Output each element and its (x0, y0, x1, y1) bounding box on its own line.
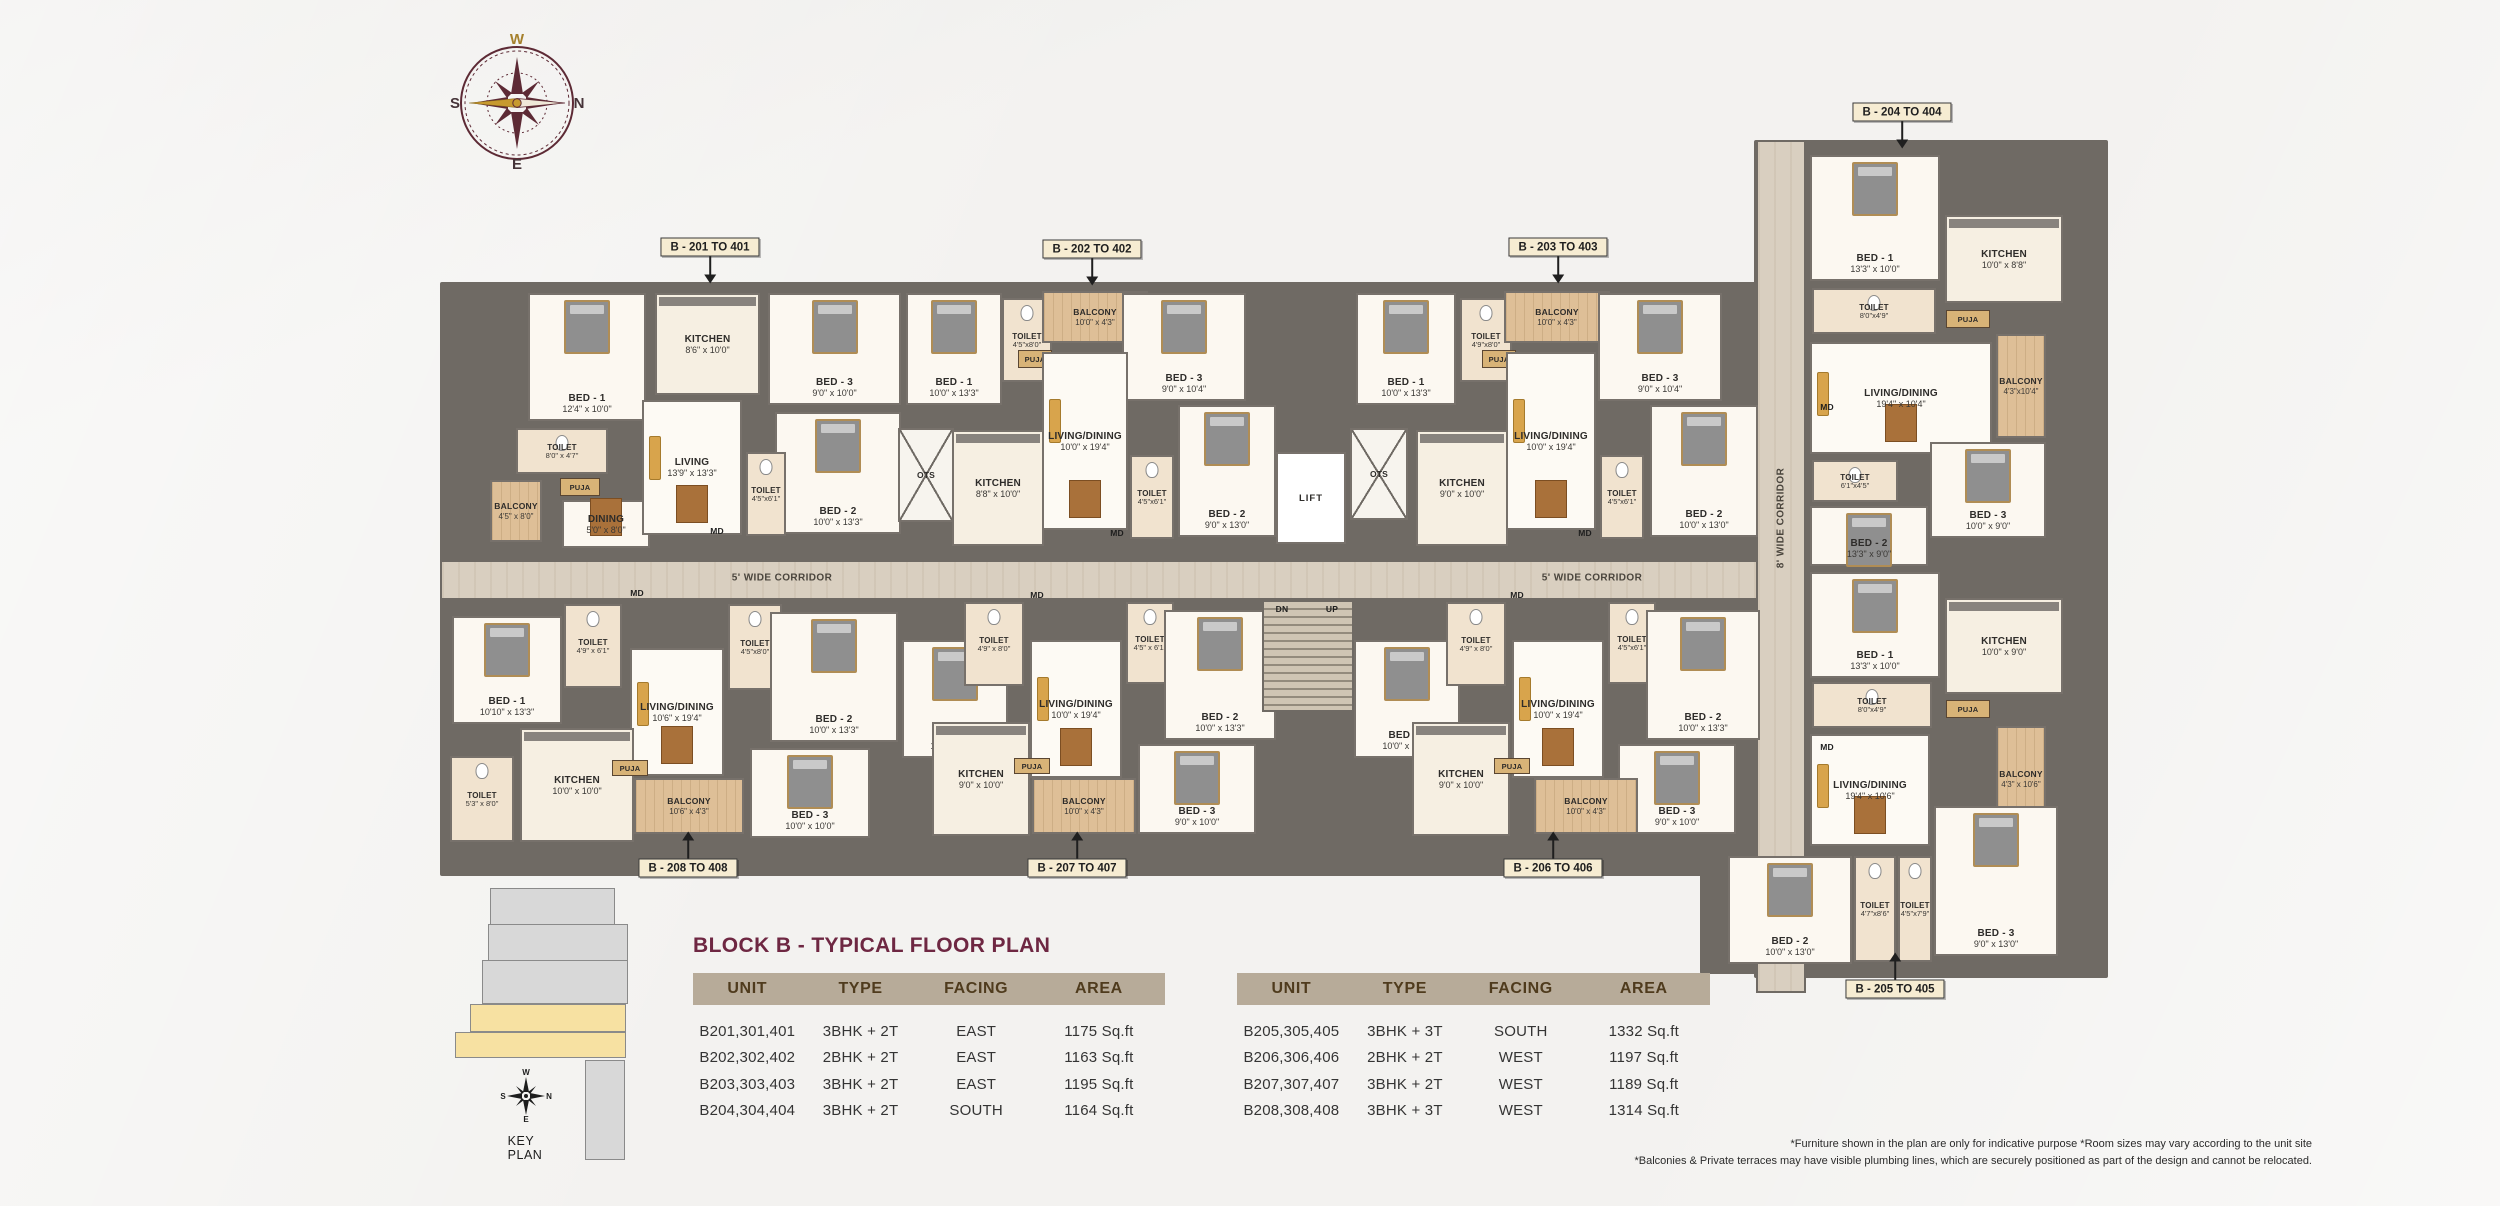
bed-icon (1654, 751, 1700, 805)
room-b-207-bed-2: BED - 210'0" x 13'3" (1164, 610, 1276, 740)
room-name: BED - 2 (1851, 538, 1888, 549)
bed-icon (787, 755, 833, 809)
room-b-202-kitchen: KITCHEN8'8" x 10'0" (952, 430, 1044, 546)
dining-table-icon (1885, 404, 1917, 442)
room-name: BED - 3 (792, 810, 829, 821)
room-dimensions: 10'0" x 9'0" (1982, 647, 2026, 657)
room-b-203-kitchen: KITCHEN9'0" x 10'0" (1416, 430, 1508, 546)
room-b-201-toilet: TOILET4'5"x6'1" (746, 452, 786, 536)
room-name: MD (1110, 528, 1124, 539)
table-cell-type: 3BHK + 3T (1346, 1023, 1464, 1040)
room-name: BED - 1 (936, 377, 973, 388)
room-name: KITCHEN (685, 334, 731, 345)
room-dimensions: 10'0" x 19'4" (1051, 710, 1100, 720)
table-cell-unit: B201,301,401 (693, 1023, 802, 1040)
room-name: BED - 1 (489, 696, 526, 707)
kitchen-counter-icon (1416, 726, 1506, 735)
room-name: KITCHEN (1438, 769, 1484, 780)
table-body: B201,301,4013BHK + 2TEAST1175 Sq.ftB202,… (693, 1018, 1165, 1124)
keyplan-compass-e: E (523, 1115, 529, 1124)
floor-plan-page: W N E S 5' WIDE CORRIDOR5' WIDE CORRIDOR… (0, 0, 2500, 1206)
room-name: KITCHEN (554, 775, 600, 786)
bed-icon (1965, 449, 2011, 503)
room-dimensions: 8'6" x 10'0" (685, 345, 729, 355)
toilet-wc-icon (1626, 609, 1639, 625)
table-cell-unit: B203,303,403 (693, 1076, 802, 1093)
unit-callout-label: B - 206 TO 406 (1503, 859, 1602, 878)
table-body: B205,305,4053BHK + 3TSOUTH1332 Sq.ftB206… (1237, 1018, 1710, 1124)
table-cell-area: 1197 Sq.ft (1578, 1049, 1710, 1066)
room-b-208-toilet: TOILET5'3" x 8'0" (450, 756, 514, 842)
room-dimensions: 4'9" x 6'1" (577, 647, 610, 655)
room-name: BALCONY (1999, 376, 2042, 387)
room-dimensions: 4'5"x6'1" (1618, 644, 1647, 652)
dining-table-icon (1069, 480, 1101, 518)
corridor-label-1: 5' WIDE CORRIDOR (732, 573, 832, 584)
kitchen-counter-icon (1949, 219, 2059, 228)
table-cell-type: 2BHK + 2T (802, 1049, 920, 1066)
kitchen-counter-icon (936, 726, 1026, 735)
corridor-label-2: 5' WIDE CORRIDOR (1542, 573, 1642, 584)
sofa-icon (1817, 764, 1829, 808)
room-b-208-bed-1: BED - 110'10" x 13'3" (452, 616, 562, 724)
room-b-203-md: MD (1568, 526, 1602, 540)
unit-table-left: UNITTYPEFACINGAREAB201,301,4013BHK + 2TE… (693, 973, 1165, 1124)
unit-callout-label: B - 202 TO 402 (1042, 240, 1141, 259)
room-dimensions: 13'3" x 10'0" (1850, 661, 1899, 671)
room-dimensions: 9'0" x 10'4" (1638, 384, 1682, 394)
room-b-201-toilet: TOILET8'0" x 4'7" (516, 428, 608, 474)
core-ots-3: OTS (1350, 428, 1408, 520)
toilet-wc-icon (1470, 609, 1483, 625)
unit-callout-label: B - 204 TO 404 (1852, 103, 1951, 122)
bed-icon (812, 300, 858, 354)
room-name: KITCHEN (958, 769, 1004, 780)
room-name: MD (1510, 590, 1524, 601)
room-dimensions: 4'5"x6'1" (752, 495, 781, 503)
room-dimensions: 8'0"x4'9" (1858, 706, 1887, 714)
room-name: MD (1578, 528, 1592, 539)
room-b-204-toilet: TOILET8'0"x4'9" (1812, 288, 1936, 334)
room-name: BALCONY (1062, 796, 1105, 807)
table-row: B205,305,4053BHK + 3TSOUTH1332 Sq.ft (1237, 1018, 1710, 1045)
room-b-201-bed-1: BED - 112'4" x 10'0" (528, 293, 646, 421)
room-name: PUJA (570, 482, 591, 493)
keyplan-label: KEY PLAN (508, 1134, 543, 1162)
room-b-207-kitchen: KITCHEN9'0" x 10'0" (932, 722, 1030, 836)
table-cell-unit: B206,306,406 (1237, 1049, 1346, 1066)
table-row: B204,304,4043BHK + 2TSOUTH1164 Sq.ft (693, 1098, 1165, 1125)
room-name: LIVING/DINING (1039, 699, 1113, 710)
room-b-204-md: MD (1812, 400, 1842, 414)
unit-callout-b-203: B - 203 TO 403 (1508, 238, 1607, 257)
room-dimensions: 9'0" x 10'4" (1162, 384, 1206, 394)
room-dimensions: 4'9"x8'0" (1472, 341, 1501, 349)
room-name: BED - 1 (1388, 377, 1425, 388)
bed-icon (1174, 751, 1220, 805)
unit-callout-arrow-icon (1894, 962, 1897, 980)
room-dimensions: 4'9" x 8'0" (1460, 645, 1493, 653)
toilet-wc-icon (988, 609, 1001, 625)
room-b-205-kitchen: KITCHEN10'0" x 9'0" (1945, 598, 2063, 694)
table-cell-facing: EAST (920, 1049, 1033, 1066)
room-b-204-balcony: BALCONY4'3"x10'4" (1996, 334, 2046, 438)
core-label: LIFT (1299, 493, 1323, 504)
room-name: LIVING/DINING (640, 702, 714, 713)
room-name: PUJA (1022, 761, 1043, 772)
unit-callout-arrow-icon (1552, 841, 1555, 859)
room-name: BALCONY (1535, 307, 1578, 318)
dining-table-icon (1542, 728, 1574, 766)
room-b-208-bed-3: BED - 310'0" x 10'0" (750, 748, 870, 838)
toilet-wc-icon (1909, 863, 1922, 879)
room-dimensions: 9'0" x 10'0" (1175, 817, 1219, 827)
room-name: BED - 1 (569, 393, 606, 404)
room-b-207-balcony: BALCONY10'0" x 4'3" (1032, 778, 1136, 834)
room-b-205-toilet: TOILET4'5"x7'9" (1898, 856, 1932, 962)
table-cell-facing: EAST (920, 1076, 1033, 1093)
bed-icon (1197, 617, 1243, 671)
room-dimensions: 4'5" x 6'1" (1134, 644, 1167, 652)
room-name: PUJA (1502, 761, 1523, 772)
room-dimensions: 4'5"x7'9" (1901, 910, 1930, 918)
room-b-208-bed-2: BED - 210'0" x 13'3" (770, 612, 898, 742)
room-b-205-md: MD (1812, 740, 1842, 754)
keyplan-compass-w: W (522, 1068, 530, 1077)
room-b-208-living-dining: LIVING/DINING10'6" x 19'4" (630, 648, 724, 776)
room-b-205-bed-1: BED - 113'3" x 10'0" (1810, 572, 1940, 678)
keyplan-compass-s: S (500, 1092, 506, 1101)
unit-callout-arrow-icon (687, 841, 690, 859)
room-name: BALCONY (494, 501, 537, 512)
bed-icon (484, 623, 530, 677)
keyplan-block-gray-4 (585, 1060, 625, 1160)
unit-callout-label: B - 205 TO 405 (1845, 980, 1944, 999)
dining-table-icon (1854, 796, 1886, 834)
room-dimensions: 10'0" x 13'3" (1381, 388, 1430, 398)
room-name: DINING (588, 514, 624, 525)
bed-icon (811, 619, 857, 673)
room-name: BED - 3 (1166, 373, 1203, 384)
toilet-wc-icon (1021, 305, 1034, 321)
room-name: MD (1820, 402, 1834, 413)
room-dimensions: 13'3" x 9'0" (1847, 549, 1891, 559)
room-dimensions: 8'0" x 4'7" (546, 452, 579, 460)
toilet-wc-icon (476, 763, 489, 779)
toilet-wc-icon (1869, 863, 1882, 879)
room-name: BED - 3 (1642, 373, 1679, 384)
bed-icon (1767, 863, 1813, 917)
room-dimensions: 10'0" x 8'8" (1982, 260, 2026, 270)
room-dimensions: 9'0" x 13'0" (1205, 520, 1249, 530)
table-cell-unit: B202,302,402 (693, 1049, 802, 1066)
table-cell-facing: WEST (1464, 1049, 1578, 1066)
unit-callout-label: B - 207 TO 407 (1027, 859, 1126, 878)
room-dimensions: 10'0" x 13'3" (1195, 723, 1244, 733)
toilet-wc-icon (749, 611, 762, 627)
room-b-201-kitchen: KITCHEN8'6" x 10'0" (655, 293, 760, 395)
dining-table-icon (676, 485, 708, 523)
room-name: BED - 2 (1202, 712, 1239, 723)
room-name: PUJA (1958, 704, 1979, 715)
bed-icon (1852, 162, 1898, 216)
table-cell-unit: B207,307,407 (1237, 1076, 1346, 1093)
table-cell-type: 3BHK + 2T (802, 1102, 920, 1119)
room-b-207-md: MD (1020, 588, 1054, 602)
room-dimensions: 13'3" x 10'0" (1850, 264, 1899, 274)
room-dimensions: 9'0" x 10'0" (959, 780, 1003, 790)
table-row: B206,306,4062BHK + 2TWEST1197 Sq.ft (1237, 1045, 1710, 1072)
room-name: BED - 3 (1970, 510, 2007, 521)
unit-callout-arrow-icon (1091, 259, 1094, 277)
room-b-201-puja: PUJA (560, 478, 600, 496)
room-dimensions: 9'0" x 10'0" (1655, 817, 1699, 827)
room-dimensions: 4'5"x6'1" (1138, 498, 1167, 506)
table-cell-area: 1189 Sq.ft (1578, 1076, 1710, 1093)
kitchen-counter-icon (956, 434, 1040, 443)
room-name: MD (710, 526, 724, 537)
room-dimensions: 10'0" x 4'3" (1075, 318, 1114, 328)
room-dimensions: 12'4" x 10'0" (562, 404, 611, 414)
table-cell-area: 1163 Sq.ft (1033, 1049, 1165, 1066)
room-b-206-md: MD (1500, 588, 1534, 602)
toilet-wc-icon (1146, 462, 1159, 478)
unit-callout-label: B - 208 TO 408 (638, 859, 737, 878)
room-b-201-bed-3: BED - 39'0" x 10'0" (768, 293, 901, 405)
room-name: LIVING/DINING (1833, 780, 1907, 791)
room-b-201-dining: DINING5'0" x 8'0" (562, 500, 650, 548)
room-name: BED - 3 (1659, 806, 1696, 817)
room-name: BED - 2 (816, 714, 853, 725)
room-dimensions: 5'3" x 8'0" (466, 800, 499, 808)
kitchen-counter-icon (1949, 602, 2059, 611)
room-name: BED - 3 (1179, 806, 1216, 817)
room-b-205-toilet: TOILET8'0"x4'9" (1812, 682, 1932, 728)
table-header-row: UNITTYPEFACINGAREA (693, 973, 1165, 1005)
corridor-label-3: 8' WIDE CORRIDOR (1776, 468, 1787, 568)
room-name: LIVING/DINING (1864, 388, 1938, 399)
room-b-202-bed-1: BED - 110'0" x 13'3" (906, 293, 1002, 405)
room-name: LIVING (675, 457, 710, 468)
page-title: BLOCK B - TYPICAL FLOOR PLAN (693, 934, 1050, 958)
footnote-line-1: *Furniture shown in the plan are only fo… (1635, 1136, 2313, 1153)
room-b-203-living-dining: LIVING/DINING10'0" x 19'4" (1506, 352, 1596, 530)
toilet-wc-icon (760, 459, 773, 475)
table-cell-area: 1175 Sq.ft (1033, 1023, 1165, 1040)
bed-icon (1680, 617, 1726, 671)
unit-callout-arrow-icon (1076, 841, 1079, 859)
room-name: PUJA (620, 763, 641, 774)
bed-icon (931, 300, 977, 354)
room-dimensions: 10'0" x 19'4" (1526, 442, 1575, 452)
core-label: UP (1326, 604, 1338, 615)
unit-callout-b-201: B - 201 TO 401 (660, 238, 759, 257)
room-dimensions: 10'0" x 10'0" (552, 786, 601, 796)
keyplan-block-highlight-2 (455, 1032, 626, 1058)
unit-callout-b-204: B - 204 TO 404 (1852, 103, 1951, 122)
room-name: BED - 2 (1772, 936, 1809, 947)
room-dimensions: 10'0" x 4'3" (1537, 318, 1576, 328)
unit-callout-arrow-icon (1901, 122, 1904, 140)
room-b-201-bed-2: BED - 210'0" x 13'3" (775, 412, 901, 534)
room-dimensions: 4'5"x8'0" (1013, 341, 1042, 349)
core-label: OTS (917, 470, 935, 481)
bed-icon (1852, 579, 1898, 633)
room-name: BALCONY (1564, 796, 1607, 807)
room-name: LIVING/DINING (1521, 699, 1595, 710)
room-b-204-toilet: TOILET6'1"x4'5" (1812, 460, 1898, 502)
room-name: BALCONY (667, 796, 710, 807)
room-dimensions: 10'0" x 13'3" (813, 517, 862, 527)
unit-callout-arrow-icon (709, 257, 712, 275)
table-cell-type: 3BHK + 2T (802, 1023, 920, 1040)
table-cell-type: 3BHK + 2T (802, 1076, 920, 1093)
table-cell-type: 3BHK + 2T (1346, 1076, 1464, 1093)
room-dimensions: 4'5"x8'0" (741, 648, 770, 656)
table-cell-area: 1314 Sq.ft (1578, 1102, 1710, 1119)
room-b-203-balcony: BALCONY10'0" x 4'3" (1504, 291, 1610, 343)
table-header-facing: FACING (1464, 980, 1578, 998)
kitchen-counter-icon (659, 297, 756, 306)
table-cell-area: 1332 Sq.ft (1578, 1023, 1710, 1040)
unit-callout-label: B - 203 TO 403 (1508, 238, 1607, 257)
table-cell-facing: WEST (1464, 1102, 1578, 1119)
room-name: KITCHEN (1981, 636, 2027, 647)
room-dimensions: 19'4" x 10'6" (1845, 791, 1894, 801)
table-row: B202,302,4022BHK + 2TEAST1163 Sq.ft (693, 1045, 1165, 1072)
room-b-202-living-dining: LIVING/DINING10'0" x 19'4" (1042, 352, 1128, 530)
bed-icon (564, 300, 610, 354)
room-b-202-bed-2: BED - 29'0" x 13'0" (1178, 405, 1276, 537)
unit-callout-label: B - 201 TO 401 (660, 238, 759, 257)
table-header-type: TYPE (802, 980, 920, 998)
table-row: B208,308,4083BHK + 3TWEST1314 Sq.ft (1237, 1098, 1710, 1125)
dining-table-icon (1060, 728, 1092, 766)
room-dimensions: 10'0" x 13'0" (1765, 947, 1814, 957)
table-cell-area: 1195 Sq.ft (1033, 1076, 1165, 1093)
room-dimensions: 4'9" x 8'0" (978, 645, 1011, 653)
room-name: BED - 1 (1857, 650, 1894, 661)
core-dn-5: DN (1266, 602, 1298, 616)
room-b-208-kitchen: KITCHEN10'0" x 10'0" (520, 728, 634, 842)
room-b-202-toilet: TOILET4'5"x6'1" (1130, 455, 1174, 539)
keyplan-compass-icon: W N E S (498, 1068, 554, 1124)
table-header-unit: UNIT (1237, 980, 1346, 998)
room-dimensions: 4'5"x6'1" (1608, 498, 1637, 506)
table-cell-area: 1164 Sq.ft (1033, 1102, 1165, 1119)
room-b-206-toilet: TOILET4'9" x 8'0" (1446, 602, 1506, 686)
table-cell-type: 3BHK + 3T (1346, 1102, 1464, 1119)
room-dimensions: 10'0" x 4'3" (1064, 807, 1103, 817)
room-b-201-md: MD (700, 524, 734, 538)
core-up-6: UP (1316, 602, 1348, 616)
room-b-208-md: MD (620, 586, 654, 600)
room-dimensions: 4'3"x10'4" (2004, 387, 2039, 397)
room-b-202-md: MD (1100, 526, 1134, 540)
room-b-207-toilet: TOILET4'9" x 8'0" (964, 602, 1024, 686)
room-dimensions: 9'0" x 10'0" (1440, 489, 1484, 499)
room-dimensions: 9'0" x 10'0" (1439, 780, 1483, 790)
room-dimensions: 10'0" x 19'4" (1060, 442, 1109, 452)
room-name: BED - 1 (1857, 253, 1894, 264)
room-dimensions: 10'6" x 4'3" (669, 807, 708, 817)
table-header-row: UNITTYPEFACINGAREA (1237, 973, 1710, 1005)
keyplan-block-gray-3 (482, 960, 628, 1004)
room-b-203-bed-1: BED - 110'0" x 13'3" (1356, 293, 1456, 405)
room-name: KITCHEN (1439, 478, 1485, 489)
dining-table-icon (661, 726, 693, 764)
toilet-wc-icon (587, 611, 600, 627)
room-b-205-puja: PUJA (1946, 700, 1990, 718)
room-dimensions: 4'5" x 8'0" (499, 512, 534, 522)
table-cell-facing: WEST (1464, 1076, 1578, 1093)
room-b-204-bed-1: BED - 113'3" x 10'0" (1810, 155, 1940, 281)
table-header-type: TYPE (1346, 980, 1464, 998)
room-dimensions: 9'0" x 10'0" (812, 388, 856, 398)
core-label: OTS (1370, 469, 1388, 480)
room-name: BED - 2 (1686, 509, 1723, 520)
toilet-wc-icon (1616, 462, 1629, 478)
unit-callout-arrow-icon (1557, 257, 1560, 275)
room-b-205-bed-3: BED - 39'0" x 13'0" (1934, 806, 2058, 956)
room-name: BALCONY (1999, 769, 2042, 780)
room-name: KITCHEN (975, 478, 1021, 489)
room-b-206-bed-2: BED - 210'0" x 13'3" (1646, 610, 1760, 740)
room-dimensions: 10'0" x 13'3" (1678, 723, 1727, 733)
toilet-wc-icon (1480, 305, 1493, 321)
core-stairs-4 (1262, 600, 1354, 712)
room-dimensions: 10'0" x 13'3" (929, 388, 978, 398)
footnotes: *Furniture shown in the plan are only fo… (1635, 1136, 2313, 1170)
room-dimensions: 4'3" x 10'6" (2001, 780, 2040, 790)
table-cell-type: 2BHK + 2T (1346, 1049, 1464, 1066)
room-b-205-bed-2: BED - 210'0" x 13'0" (1728, 856, 1852, 964)
room-b-204-kitchen: KITCHEN10'0" x 8'8" (1945, 215, 2063, 303)
room-dimensions: 13'9" x 13'3" (667, 468, 716, 478)
room-b-208-toilet: TOILET4'9" x 6'1" (564, 604, 622, 688)
room-b-204-puja: PUJA (1946, 310, 1990, 328)
room-name: MD (1820, 742, 1834, 753)
room-name: BED - 3 (816, 377, 853, 388)
room-b-208-puja: PUJA (612, 760, 648, 776)
room-b-203-bed-3: BED - 39'0" x 10'4" (1598, 293, 1722, 401)
room-dimensions: 10'0" x 4'3" (1566, 807, 1605, 817)
core-lift-2: LIFT (1276, 452, 1346, 544)
room-b-204-bed-2: BED - 213'3" x 9'0" (1810, 506, 1928, 566)
table-cell-unit: B204,304,404 (693, 1102, 802, 1119)
room-name: BALCONY (1073, 307, 1116, 318)
bed-icon (1384, 647, 1430, 701)
footnote-line-2: *Balconies & Private terraces may have v… (1635, 1153, 2313, 1170)
room-dimensions: 6'1"x4'5" (1841, 482, 1870, 490)
room-name: LIVING/DINING (1514, 431, 1588, 442)
bed-icon (1204, 412, 1250, 466)
room-dimensions: 4'7"x8'6" (1861, 910, 1890, 918)
keyplan-block-gray-1 (490, 888, 615, 926)
room-name: BED - 2 (1685, 712, 1722, 723)
sofa-icon (649, 436, 661, 480)
room-b-206-kitchen: KITCHEN9'0" x 10'0" (1412, 722, 1510, 836)
bed-icon (1637, 300, 1683, 354)
dining-table-icon (1535, 480, 1567, 518)
core-ots-1: OTS (898, 428, 954, 522)
unit-table-right: UNITTYPEFACINGAREAB205,305,4053BHK + 3TS… (1237, 973, 1710, 1124)
room-b-204-living-dining: LIVING/DINING19'4" x 10'4" (1810, 342, 1992, 454)
table-row: B201,301,4013BHK + 2TEAST1175 Sq.ft (693, 1018, 1165, 1045)
room-name: MD (630, 588, 644, 599)
room-dimensions: 8'0"x4'9" (1860, 312, 1889, 320)
table-row: B207,307,4073BHK + 2TWEST1189 Sq.ft (1237, 1071, 1710, 1098)
